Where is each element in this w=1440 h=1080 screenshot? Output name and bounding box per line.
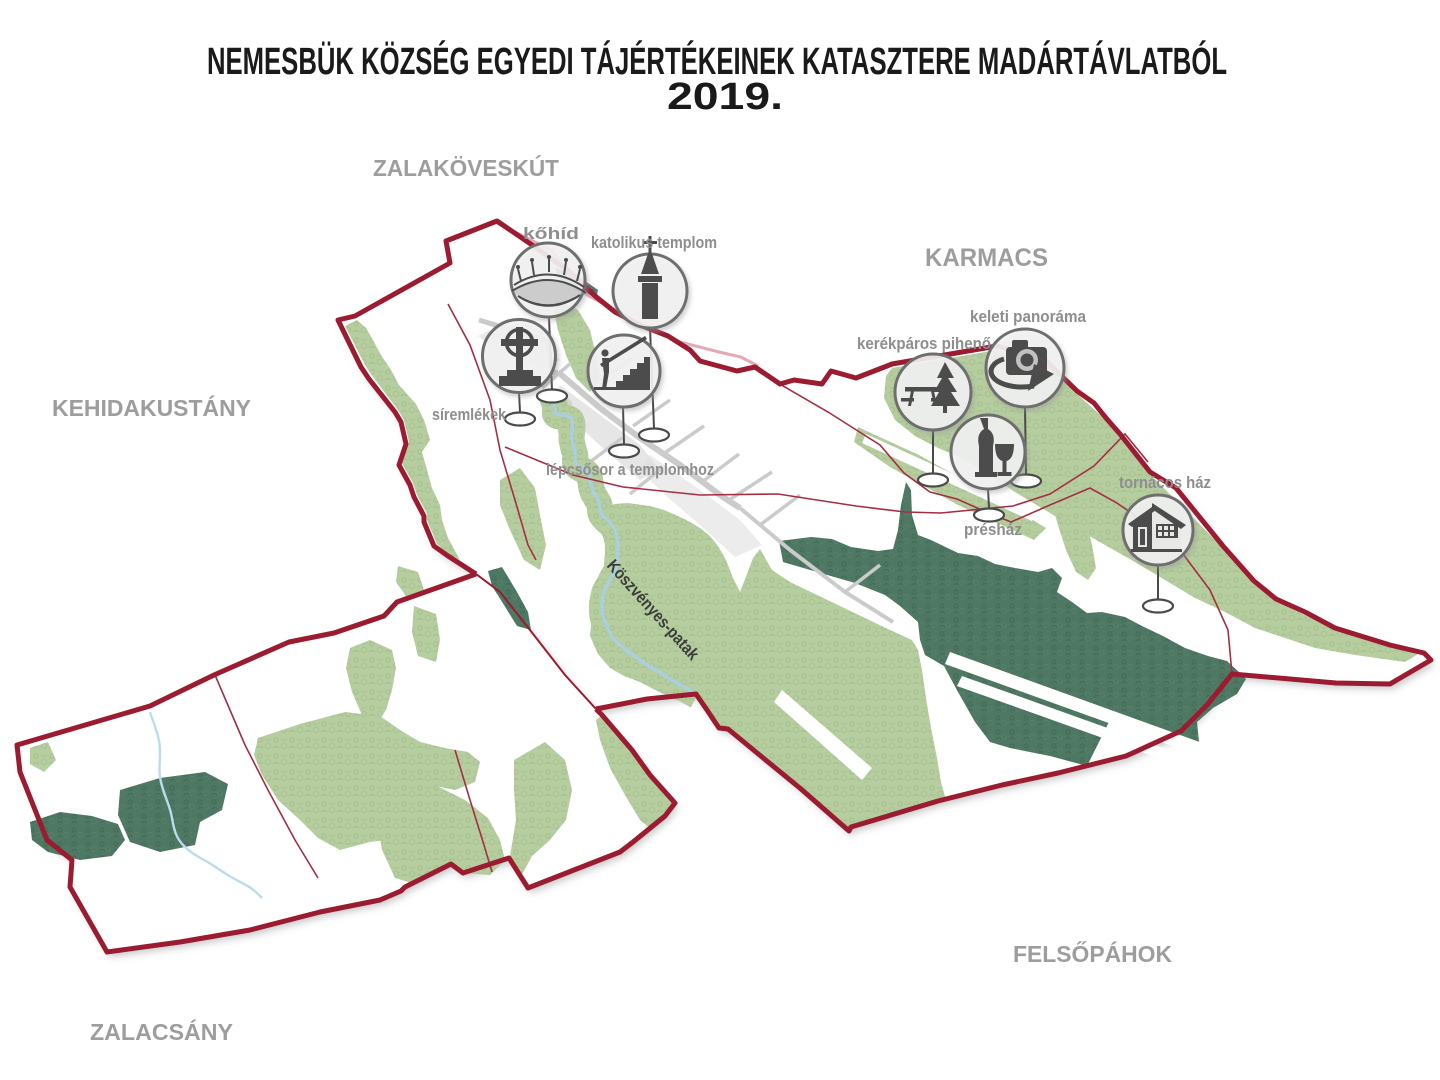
svg-text:FELSŐPÁHOK: FELSŐPÁHOK <box>1013 940 1172 967</box>
svg-text:lépcsősor a templomhoz: lépcsősor a templomhoz <box>546 460 714 479</box>
svg-text:katolikus templom: katolikus templom <box>591 233 717 252</box>
svg-text:présház: présház <box>964 520 1022 539</box>
svg-text:kőhíd: kőhíd <box>523 224 579 243</box>
svg-text:tornácos ház: tornácos ház <box>1119 473 1211 492</box>
svg-text:KARMACS: KARMACS <box>925 244 1048 272</box>
svg-text:kerékpáros pihenő: kerékpáros pihenő <box>857 334 991 353</box>
svg-text:ZALACSÁNY: ZALACSÁNY <box>90 1018 233 1045</box>
svg-text:ZALAKÖVESKÚT: ZALAKÖVESKÚT <box>373 154 559 181</box>
svg-text:keleti panoráma: keleti panoráma <box>970 307 1086 326</box>
svg-text:KEHIDAKUSTÁNY: KEHIDAKUSTÁNY <box>52 394 251 421</box>
svg-text:síremlékek: síremlékek <box>432 405 506 424</box>
svg-text:2019.: 2019. <box>667 76 783 118</box>
